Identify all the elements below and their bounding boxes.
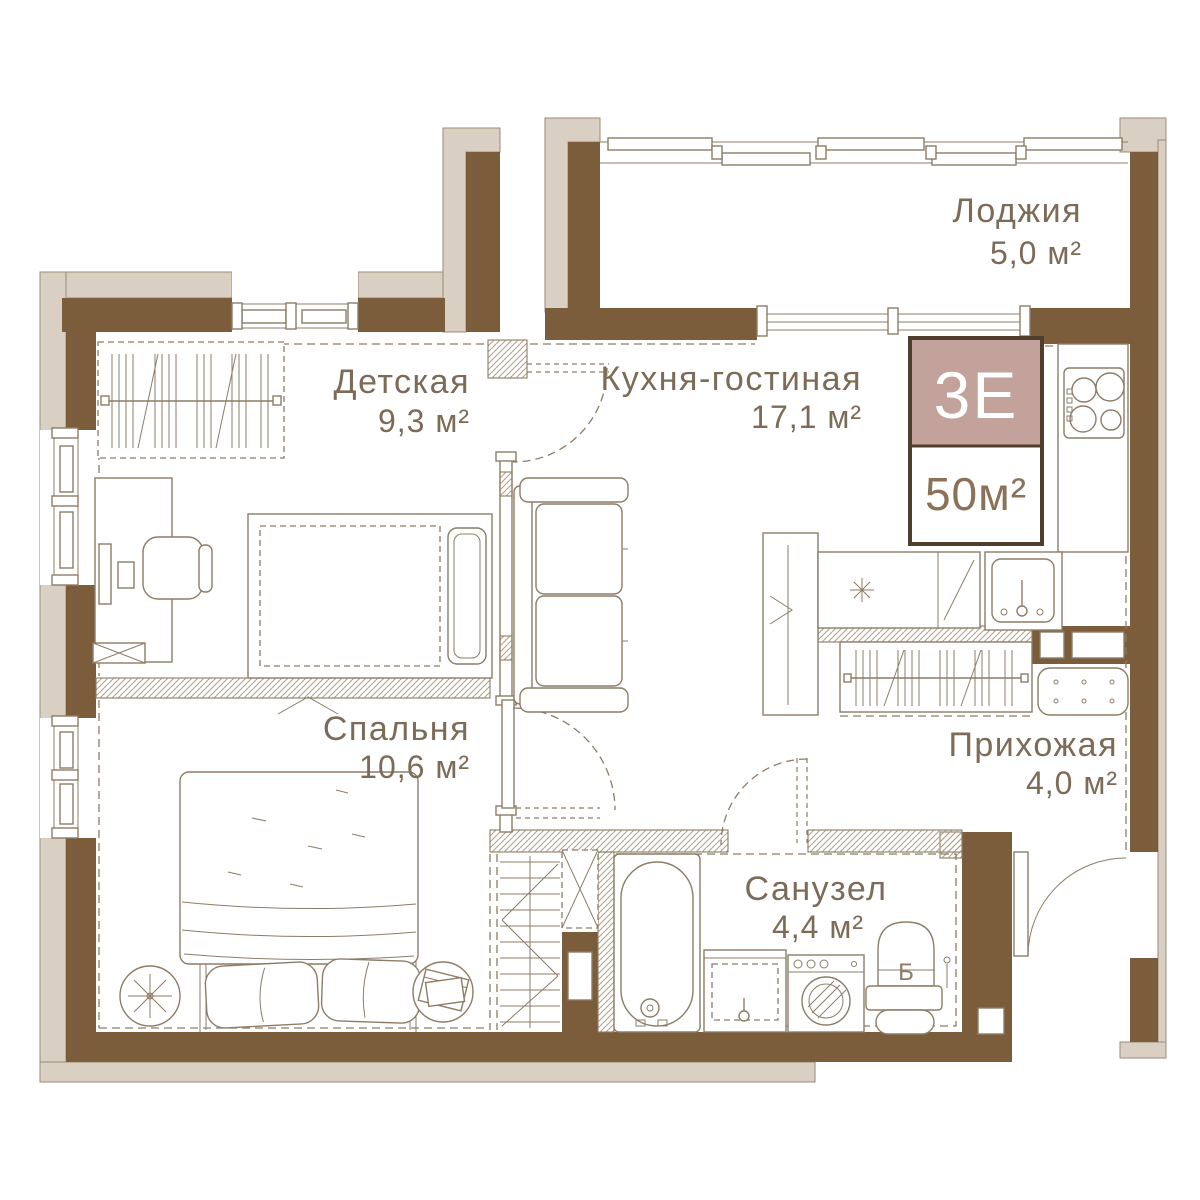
floor-plan: Б Лоджия 5,0 м² Детская 9,3 м² Кухня-гос…	[0, 0, 1200, 1200]
kids-bed	[248, 514, 492, 678]
nightstand-plant	[120, 966, 180, 1026]
bathtub	[614, 854, 700, 1032]
keyboard-icon	[118, 562, 134, 588]
kitchen-sink	[985, 552, 1062, 630]
hall-wardrobe	[840, 642, 1032, 712]
double-bed	[180, 772, 421, 1032]
washing-machine	[788, 955, 864, 1032]
bedroom-area: 10,6 м²	[359, 749, 470, 785]
door-kitchen	[513, 364, 609, 462]
bedroom-name: Спальня	[323, 710, 470, 748]
kitchen-area: 17,1 м²	[751, 399, 862, 435]
vent-shaft	[562, 850, 598, 928]
water-heater-label: Б	[898, 959, 914, 986]
window-kids-left	[40, 428, 96, 585]
bathroom-name: Санузел	[745, 870, 888, 908]
doormat	[1038, 668, 1128, 715]
loggia-glazing	[600, 138, 1128, 165]
hall-upper-cabinet	[818, 552, 980, 628]
door-entrance	[1014, 852, 1126, 956]
desk-chair	[143, 537, 212, 599]
unit-badge: 3Е 50м²	[910, 338, 1042, 544]
hallway-name: Прихожая	[948, 726, 1118, 764]
bedroom-closet	[500, 856, 560, 1028]
bathroom-vanity	[704, 950, 786, 1032]
pillow	[204, 961, 319, 1029]
unit-total-area: 50м²	[925, 468, 1027, 520]
monitor-icon	[99, 544, 111, 604]
kitchen-name: Кухня-гостиная	[600, 360, 862, 398]
hall-cabinet	[763, 533, 818, 715]
unit-type: 3Е	[934, 358, 1019, 432]
wardrobe-kids	[98, 342, 284, 458]
pillow	[321, 958, 421, 1023]
loggia-area: 5,0 м²	[990, 235, 1082, 271]
window-kids-top	[232, 270, 358, 334]
door-bathroom	[721, 758, 807, 845]
hallway-area: 4,0 м²	[1026, 765, 1118, 801]
nightstand-books	[413, 962, 473, 1022]
window-bedroom-left	[40, 716, 96, 838]
sofa	[514, 478, 628, 712]
bathroom-area: 4,4 м²	[772, 909, 864, 945]
loggia-name: Лоджия	[953, 192, 1082, 230]
water-heater: Б	[878, 922, 934, 986]
door-bedroom	[502, 700, 615, 818]
cooktop-icon	[1064, 368, 1124, 438]
radiator-kids	[93, 643, 145, 663]
kids-area: 9,3 м²	[378, 403, 470, 439]
floor-plan-page: Б Лоджия 5,0 м² Детская 9,3 м² Кухня-гос…	[0, 0, 1200, 1200]
kids-name: Детская	[334, 363, 470, 401]
